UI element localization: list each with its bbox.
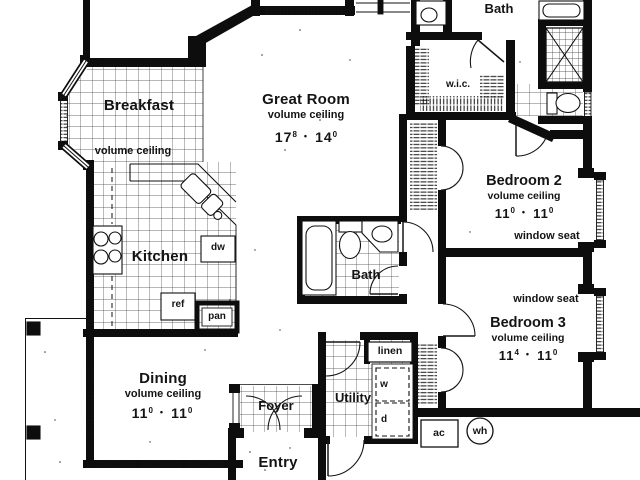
dims-great-room: 178•140 bbox=[275, 130, 337, 144]
room-label-utility: Utility bbox=[335, 391, 371, 404]
room-label-foyer: Foyer bbox=[258, 399, 293, 412]
window-dining-left bbox=[87, 362, 94, 437]
ceiling-label-dining: volume ceiling bbox=[125, 389, 201, 400]
door-garage bbox=[328, 440, 364, 476]
room-label-bedroom-2: Bedroom 2 bbox=[486, 174, 562, 189]
dim-b-sup: 0 bbox=[333, 130, 337, 139]
door-bed3-closet bbox=[441, 348, 463, 392]
door-bed3 bbox=[443, 304, 475, 336]
room-label-hall-bath: Bath bbox=[352, 268, 381, 281]
toilet-middle bbox=[339, 221, 362, 259]
dim-a: 11 bbox=[499, 348, 515, 363]
dim-b: 11 bbox=[171, 405, 188, 421]
ceiling-label-bedroom-3: volume ceiling bbox=[492, 333, 565, 344]
sliding-door-top bbox=[356, 0, 410, 14]
dims-dining: 110•110 bbox=[132, 406, 193, 420]
dim-a: 17 bbox=[275, 129, 293, 145]
ceiling-label-bedroom-2: volume ceiling bbox=[488, 191, 561, 202]
ceiling-label-breakfast: volume ceiling bbox=[95, 146, 171, 157]
dim-sep: • bbox=[160, 407, 164, 417]
window-greatroom-top bbox=[266, 7, 342, 15]
dining-cased-opening bbox=[233, 392, 239, 424]
window-seat-bed2 bbox=[597, 180, 604, 240]
appliance-label-pantry: pan bbox=[208, 312, 226, 322]
vanity-upper bbox=[416, 1, 446, 25]
dim-b-sup: 0 bbox=[549, 206, 553, 215]
room-label-upper-bath: Bath bbox=[485, 2, 514, 15]
floor-plan: Breakfast volume ceiling Great Room volu… bbox=[0, 0, 640, 480]
room-label-breakfast: Breakfast bbox=[104, 98, 174, 113]
dim-a-sup: 8 bbox=[292, 130, 296, 139]
bed3-closet-rod bbox=[417, 344, 437, 404]
window-kitchen-2 bbox=[87, 284, 94, 325]
door-bed2-closet bbox=[441, 146, 463, 190]
door-wic bbox=[470, 40, 504, 68]
window-seat-bed3 bbox=[597, 296, 604, 352]
dim-a-sup: 0 bbox=[510, 206, 514, 215]
room-label-bedroom-3: Bedroom 3 bbox=[490, 316, 566, 331]
dim-b-sup: 0 bbox=[188, 406, 192, 415]
room-label-entry: Entry bbox=[258, 455, 297, 470]
dim-b-sup: 0 bbox=[553, 348, 557, 357]
room-label-great-room: Great Room bbox=[262, 92, 350, 107]
dim-sep: • bbox=[304, 131, 308, 141]
window-hallbath bbox=[585, 92, 592, 118]
porch bbox=[25, 318, 86, 480]
closet-rods bbox=[410, 48, 504, 404]
window-breakfast-top bbox=[104, 59, 186, 67]
dims-bedroom-3: 114•110 bbox=[499, 349, 558, 362]
window-kitchen-1 bbox=[87, 184, 94, 227]
shower-upper bbox=[546, 28, 583, 82]
dim-a-sup: 0 bbox=[148, 406, 152, 415]
door-hall bbox=[403, 222, 433, 252]
dim-b: 11 bbox=[533, 206, 549, 221]
dim-sep: • bbox=[526, 349, 530, 359]
dim-a: 11 bbox=[132, 405, 149, 421]
dim-a-sup: 4 bbox=[514, 348, 518, 357]
feature-label-window-seat-bed3: window seat bbox=[513, 294, 578, 305]
dims-bedroom-2: 110•110 bbox=[495, 207, 554, 220]
window-bay-left bbox=[61, 97, 68, 144]
wic-rod-right bbox=[480, 74, 504, 98]
toilet-upper bbox=[547, 93, 580, 114]
appliance-label-washer: w bbox=[380, 380, 388, 390]
bathtub-middle bbox=[302, 221, 336, 295]
dim-a: 11 bbox=[495, 206, 511, 221]
ceiling-label-great-room: volume ceiling bbox=[268, 110, 344, 121]
wic-rod-bottom bbox=[420, 96, 504, 111]
equipment-label-ac: ac bbox=[433, 428, 445, 439]
dim-b: 11 bbox=[537, 348, 553, 363]
appliance-label-dishwasher: dw bbox=[211, 243, 225, 253]
washer-dryer bbox=[372, 364, 413, 439]
feature-label-window-seat-bed2: window seat bbox=[514, 231, 579, 242]
dim-sep: • bbox=[522, 207, 526, 217]
bathtub-upper bbox=[539, 1, 584, 20]
appliance-label-refrigerator: ref bbox=[172, 300, 185, 310]
room-label-dining: Dining bbox=[139, 371, 187, 386]
dim-b: 14 bbox=[315, 129, 333, 145]
room-label-wic: w.i.c. bbox=[446, 80, 470, 90]
equipment-label-wh: wh bbox=[473, 426, 488, 437]
bed2-closet-rod bbox=[410, 122, 437, 210]
room-label-kitchen: Kitchen bbox=[132, 249, 188, 264]
closet-label-linen: linen bbox=[378, 346, 403, 357]
appliance-label-dryer: d bbox=[381, 415, 387, 425]
window-dining-bottom bbox=[98, 461, 222, 468]
